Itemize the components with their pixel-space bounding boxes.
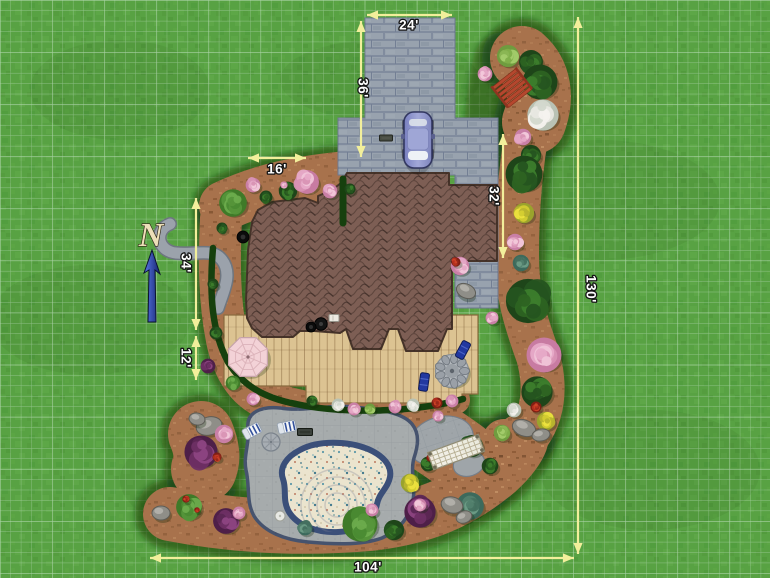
plant-tree-dark[interactable]: [506, 279, 552, 323]
dimension-label: 34': [178, 253, 193, 273]
utility-box[interactable]: [329, 315, 339, 322]
mat[interactable]: [298, 429, 313, 436]
car[interactable]: [401, 112, 436, 175]
side-table[interactable]: [275, 511, 285, 521]
chimney[interactable]: [306, 322, 316, 332]
dimension-label: 130': [583, 275, 598, 303]
deck-chair[interactable]: [418, 372, 429, 391]
landscape-plan: 24'36'16'32'34'12'130'104' N: [0, 0, 770, 578]
north-label: N: [138, 217, 165, 254]
dimension-label: 12': [178, 348, 193, 368]
dimension-label: 36': [355, 78, 370, 98]
dimension-label: 32': [486, 186, 501, 206]
dimension-label: 104': [354, 560, 382, 575]
design-canvas: 24'36'16'32'34'12'130'104' N: [0, 0, 770, 578]
dimension-label: 16': [267, 162, 287, 177]
round-paver[interactable]: [262, 433, 280, 451]
door-mat[interactable]: [380, 135, 393, 141]
dimension-label: 24': [399, 18, 419, 33]
chimney[interactable]: [237, 231, 249, 243]
